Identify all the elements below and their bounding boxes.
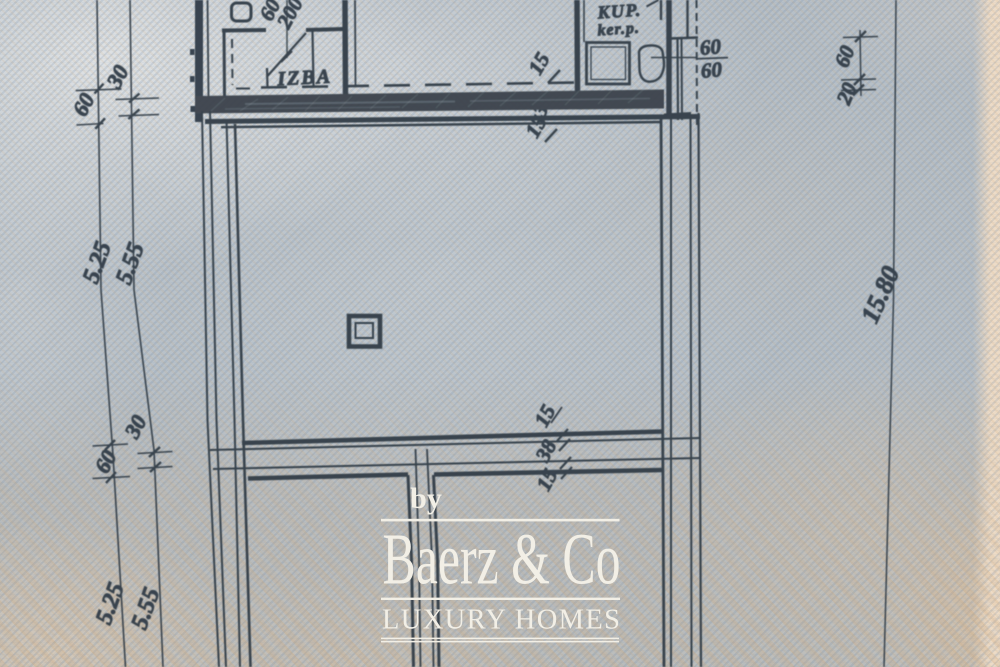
svg-text:30: 30 <box>119 411 152 443</box>
svg-text:5.55: 5.55 <box>127 584 166 632</box>
svg-text:60: 60 <box>89 446 121 477</box>
svg-text:5.55: 5.55 <box>111 239 150 287</box>
svg-text:ker.p.: ker.p. <box>597 20 641 40</box>
svg-text:5.25: 5.25 <box>91 579 130 627</box>
svg-text:60: 60 <box>699 34 723 60</box>
svg-text:30: 30 <box>101 61 134 93</box>
svg-text:15: 15 <box>531 465 562 495</box>
svg-text:15: 15 <box>523 48 554 78</box>
svg-text:15.80: 15.80 <box>855 262 905 327</box>
svg-text:LUXURY HOMES: LUXURY HOMES <box>382 605 620 636</box>
svg-text:Baerz & Co: Baerz & Co <box>383 519 621 600</box>
svg-text:60: 60 <box>829 42 859 71</box>
svg-text:by: by <box>410 482 442 515</box>
svg-text:60: 60 <box>700 57 724 83</box>
